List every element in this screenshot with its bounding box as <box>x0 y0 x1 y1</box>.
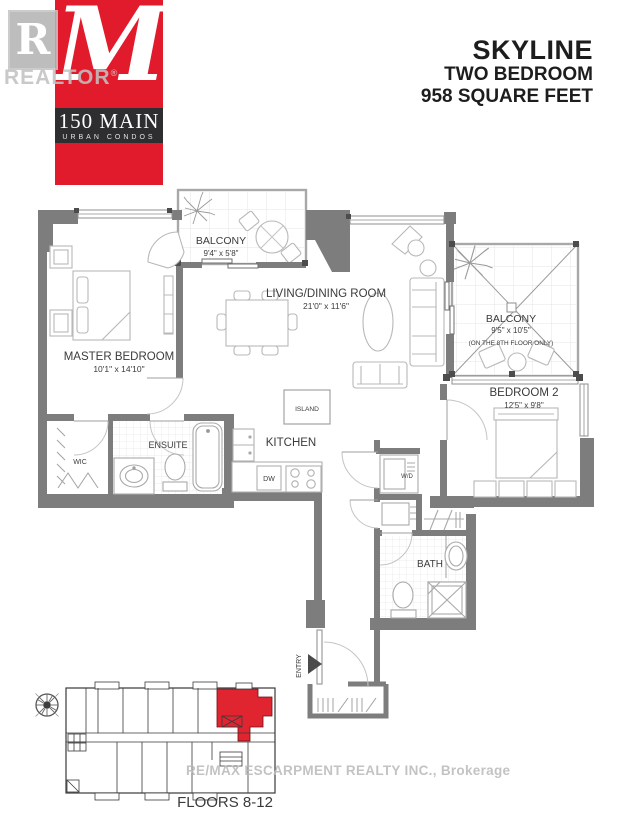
plan-type: TWO BEDROOM <box>421 64 593 86</box>
realtor-wordmark: REALTOR® <box>4 66 118 90</box>
linen-shelves <box>382 503 409 525</box>
bench <box>499 481 524 497</box>
keyplan-floors-label: FLOORS 8-12 <box>177 794 273 811</box>
desk-chair <box>408 240 424 256</box>
realtor-r-letter: R <box>16 19 51 61</box>
dining-table <box>226 300 288 346</box>
logo-title: 150 MAIN <box>55 110 163 133</box>
dw-label: DW <box>263 476 275 483</box>
pillow <box>77 307 88 333</box>
living-dims: 21'0" x 11'6" <box>303 301 349 311</box>
realtor-logo-icon: R <box>8 10 58 70</box>
balcony1-dims: 9'4" x 5'8" <box>204 249 239 258</box>
plan-name: SKYLINE <box>421 36 593 64</box>
bench <box>474 481 496 497</box>
kitchen-label: KITCHEN <box>266 437 316 449</box>
bathtub <box>193 423 222 491</box>
dining-chair <box>217 314 226 330</box>
rug <box>363 293 393 351</box>
registered-mark-icon: ® <box>111 68 119 78</box>
logo-subtitle: URBAN CONDOS <box>55 134 163 141</box>
bench <box>527 481 552 497</box>
living-label: LIVING/DINING ROOM <box>266 288 386 300</box>
brokerage-watermark: RE/MAX ESCARPMENT REALTY INC., Brokerage <box>186 763 510 778</box>
patio-table <box>508 353 526 371</box>
sofa <box>410 278 444 366</box>
plan-header: SKYLINE TWO BEDROOM 958 SQUARE FEET <box>421 36 593 108</box>
wic-label: WIC <box>73 459 87 466</box>
dining-chair <box>234 291 250 300</box>
wic-hanging-symbols <box>57 428 98 488</box>
toilet-tank <box>163 482 187 491</box>
bedroom2-label: BEDROOM 2 <box>489 387 558 399</box>
plan-area: 958 SQUARE FEET <box>421 86 593 108</box>
compass-icon <box>36 694 59 717</box>
keyplan: FLOORS 8-12 <box>66 682 275 811</box>
island-label: ISLAND <box>295 406 319 413</box>
balcony2-note: (ON THE 8TH FLOOR ONLY) <box>469 340 554 347</box>
bedroom2-furniture <box>474 408 576 497</box>
dining-chair <box>288 314 297 330</box>
side-table <box>420 260 436 276</box>
dining-chair <box>262 346 278 355</box>
bench <box>555 481 576 497</box>
toilet-bowl <box>393 582 413 608</box>
master-label: MASTER BEDROOM <box>64 351 175 363</box>
building-logo: M 150 MAIN URBAN CONDOS <box>55 0 163 185</box>
balcony1-label: BALCONY <box>196 235 246 247</box>
master-dims: 10'1" x 14'10" <box>93 364 144 374</box>
toilet-tank <box>391 610 416 618</box>
bedroom2-dims: 12'5" x 9'8" <box>504 401 544 410</box>
wd-label: W/D <box>401 474 413 480</box>
hanging-closet-symbols <box>424 510 464 530</box>
master-furniture <box>50 232 184 340</box>
bath-label: BATH <box>417 559 443 570</box>
balcony-1 <box>178 190 306 264</box>
logo-band: 150 MAIN URBAN CONDOS <box>55 108 163 143</box>
entry-door-leaf <box>317 630 322 684</box>
entry-label: ENTRY <box>296 654 303 678</box>
pillow <box>77 277 88 303</box>
balcony2-label: BALCONY <box>486 313 536 325</box>
corner-chair <box>148 232 184 268</box>
balcony-2 <box>452 244 578 376</box>
dining-chair <box>234 346 250 355</box>
ensuite-label: ENSUITE <box>148 440 187 450</box>
stove <box>286 466 321 492</box>
entry-closet-symbols <box>318 698 376 712</box>
realtor-text: REALTOR <box>4 66 111 89</box>
floorplan-page: BALCONY 9'4" x 5'8" LIVING/DINING ROOM 2… <box>0 0 640 828</box>
balcony2-dims: 9'5" x 10'5" <box>491 326 531 335</box>
dresser <box>164 276 173 334</box>
toilet-bowl <box>165 454 185 480</box>
